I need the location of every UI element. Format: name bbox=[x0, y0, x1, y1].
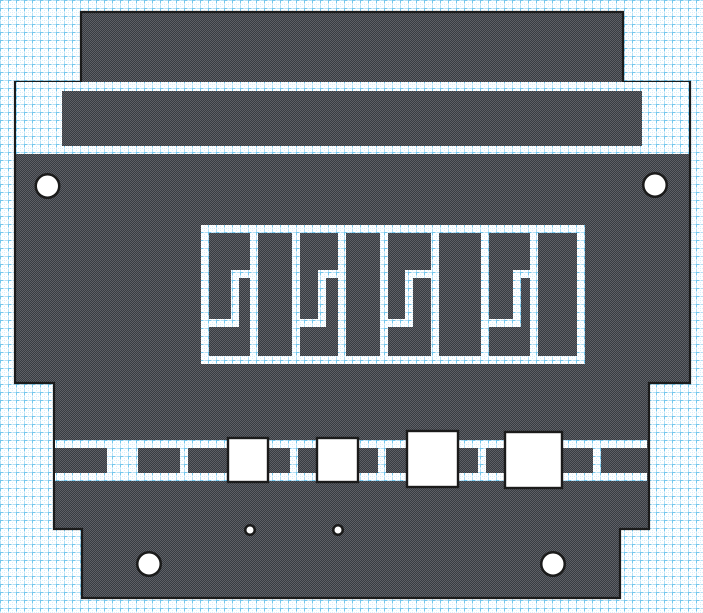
tooling-hole-small bbox=[245, 525, 255, 535]
pad-square bbox=[407, 431, 458, 487]
pattern-slot bbox=[481, 319, 521, 327]
pattern-slot bbox=[292, 319, 326, 327]
pattern-slot bbox=[201, 225, 585, 233]
pattern-slot bbox=[380, 319, 413, 327]
mount-hole-large bbox=[643, 173, 667, 197]
pad-square bbox=[505, 432, 562, 488]
pattern-slot bbox=[292, 225, 300, 364]
band-slot bbox=[478, 440, 486, 481]
pad-square bbox=[228, 438, 268, 482]
band-slot bbox=[180, 440, 188, 481]
pattern-slot bbox=[201, 356, 585, 364]
pattern-slot bbox=[431, 225, 439, 364]
pad-square bbox=[317, 438, 358, 482]
pattern-slot bbox=[405, 270, 413, 327]
band-slot bbox=[593, 440, 601, 481]
mount-hole-large bbox=[36, 174, 60, 198]
mount-hole-large bbox=[137, 552, 161, 576]
pattern-slot bbox=[201, 225, 209, 364]
pattern-slot bbox=[577, 225, 585, 364]
pattern-slot bbox=[380, 225, 388, 364]
band-slot bbox=[378, 440, 386, 481]
pattern-slot bbox=[231, 270, 239, 327]
pattern-slot bbox=[250, 225, 258, 364]
mount-hole-large bbox=[541, 552, 565, 576]
tooling-hole-small bbox=[333, 525, 343, 535]
pattern-slot bbox=[530, 225, 538, 364]
band-slot bbox=[107, 440, 138, 481]
pattern-slot bbox=[338, 225, 346, 364]
pattern-slot bbox=[318, 270, 326, 327]
pattern-slot bbox=[201, 319, 239, 327]
pattern-slot bbox=[481, 225, 489, 364]
drawing-canvas bbox=[0, 0, 703, 613]
pattern-slot bbox=[513, 270, 521, 327]
technical-drawing bbox=[0, 0, 703, 613]
band-slot bbox=[290, 440, 298, 481]
crossbar-strip bbox=[62, 91, 642, 146]
